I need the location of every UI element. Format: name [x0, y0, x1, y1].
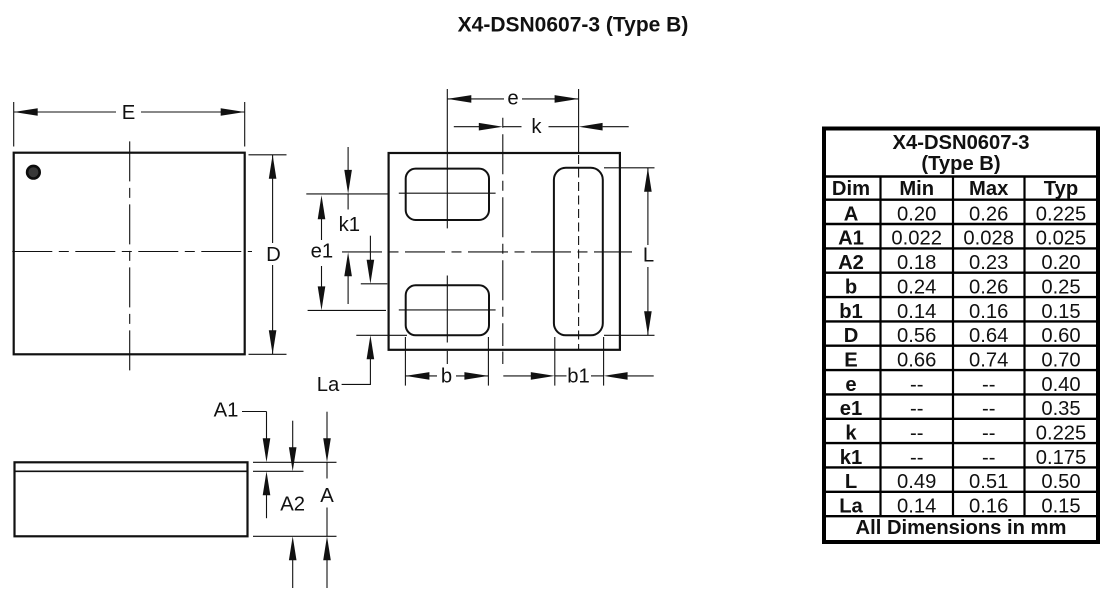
svg-text:0.60: 0.60: [1041, 325, 1080, 347]
svg-text:0.49: 0.49: [897, 471, 936, 493]
svg-text:0.225: 0.225: [1036, 203, 1087, 225]
svg-text:E: E: [122, 102, 136, 124]
svg-text:b1: b1: [839, 301, 863, 323]
svg-text:0.20: 0.20: [1041, 252, 1080, 274]
svg-text:--: --: [982, 423, 995, 445]
svg-text:0.35: 0.35: [1041, 398, 1080, 420]
svg-text:0.16: 0.16: [969, 496, 1008, 518]
svg-text:A: A: [320, 485, 334, 507]
svg-text:All Dimensions in mm: All Dimensions in mm: [856, 517, 1067, 539]
svg-text:0.25: 0.25: [1041, 276, 1080, 298]
svg-text:--: --: [982, 374, 995, 396]
svg-text:b1: b1: [567, 366, 590, 388]
svg-text:E: E: [844, 349, 857, 371]
svg-text:0.20: 0.20: [897, 203, 936, 225]
svg-text:A2: A2: [838, 252, 864, 274]
svg-text:e: e: [507, 88, 518, 110]
svg-text:D: D: [844, 325, 859, 347]
svg-text:Typ: Typ: [1044, 178, 1078, 200]
svg-text:--: --: [982, 447, 995, 469]
svg-text:A1: A1: [214, 400, 239, 422]
svg-text:b: b: [845, 276, 857, 298]
svg-text:0.64: 0.64: [969, 325, 1008, 347]
svg-text:--: --: [910, 398, 923, 420]
svg-text:e: e: [845, 374, 856, 396]
svg-text:0.15: 0.15: [1041, 496, 1080, 518]
svg-text:0.175: 0.175: [1036, 447, 1087, 469]
svg-text:D: D: [266, 244, 281, 266]
svg-text:0.56: 0.56: [897, 325, 936, 347]
svg-text:e1: e1: [840, 398, 862, 420]
svg-text:0.66: 0.66: [897, 349, 936, 371]
svg-text:0.74: 0.74: [969, 349, 1008, 371]
svg-text:k: k: [845, 423, 857, 445]
svg-text:0.14: 0.14: [897, 301, 936, 323]
svg-text:--: --: [910, 447, 923, 469]
svg-text:A: A: [844, 203, 859, 225]
svg-text:--: --: [982, 398, 995, 420]
svg-text:0.26: 0.26: [969, 203, 1008, 225]
svg-text:0.025: 0.025: [1036, 228, 1087, 250]
svg-text:Min: Min: [899, 178, 934, 200]
svg-text:k1: k1: [840, 447, 862, 469]
svg-text:0.16: 0.16: [969, 301, 1008, 323]
svg-text:0.24: 0.24: [897, 276, 936, 298]
svg-text:k: k: [531, 116, 542, 138]
svg-text:X4-DSN0607-3 (Type B): X4-DSN0607-3 (Type B): [458, 14, 689, 37]
svg-text:0.23: 0.23: [969, 252, 1008, 274]
svg-text:0.70: 0.70: [1041, 349, 1080, 371]
svg-text:Max: Max: [969, 178, 1009, 200]
svg-text:Dim: Dim: [832, 178, 870, 200]
svg-text:0.15: 0.15: [1041, 301, 1080, 323]
svg-text:0.40: 0.40: [1041, 374, 1080, 396]
svg-text:k1: k1: [339, 214, 360, 236]
svg-text:La: La: [839, 496, 863, 518]
svg-text:L: L: [643, 245, 654, 267]
svg-text:b: b: [441, 366, 452, 388]
svg-text:A1: A1: [838, 228, 864, 250]
svg-text:0.51: 0.51: [969, 471, 1008, 493]
svg-text:0.50: 0.50: [1041, 471, 1080, 493]
svg-text:e1: e1: [311, 241, 334, 263]
svg-text:0.26: 0.26: [969, 276, 1008, 298]
svg-text:--: --: [910, 374, 923, 396]
svg-text:0.022: 0.022: [891, 228, 942, 250]
svg-text:--: --: [910, 423, 923, 445]
svg-text:0.225: 0.225: [1036, 423, 1087, 445]
svg-text:L: L: [845, 471, 857, 493]
svg-text:0.14: 0.14: [897, 496, 936, 518]
svg-text:X4-DSN0607-3: X4-DSN0607-3: [893, 132, 1030, 154]
svg-text:A2: A2: [280, 494, 305, 516]
svg-text:La: La: [317, 374, 340, 396]
svg-text:(Type B): (Type B): [921, 153, 1000, 175]
svg-text:0.028: 0.028: [963, 228, 1014, 250]
svg-text:0.18: 0.18: [897, 252, 936, 274]
